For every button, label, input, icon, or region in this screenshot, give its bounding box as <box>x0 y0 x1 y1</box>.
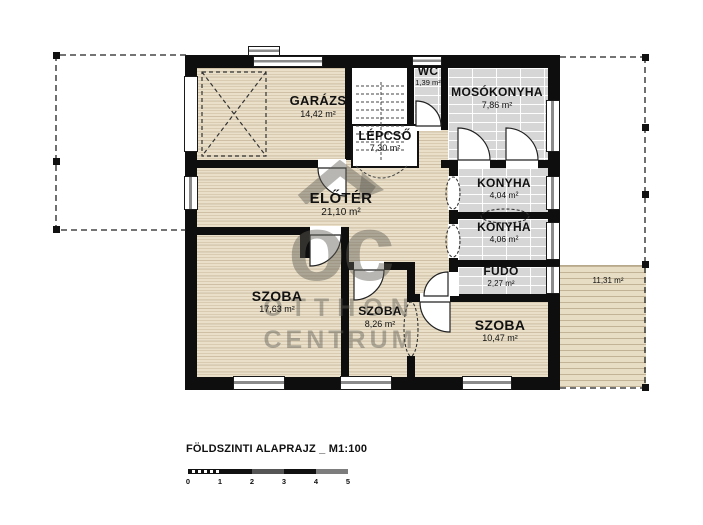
window <box>340 376 392 390</box>
wall-szoba2-top <box>341 262 414 270</box>
wall-wc-mosokonyha <box>441 55 448 124</box>
wall-mosokonyha-bottom <box>441 160 560 168</box>
door-leaf-szoba1 <box>300 249 322 258</box>
floor-mosokonyha <box>448 68 548 160</box>
window <box>248 46 280 56</box>
garage-door-opening <box>184 76 198 152</box>
room-label-szoba-1: SZOBA 17,63 m² <box>252 288 303 314</box>
wall-szoba1-szoba2 <box>341 227 349 377</box>
room-label-szoba-3: SZOBA 10,47 m² <box>475 317 526 343</box>
room-label-eloter: ELŐTÉR 21,10 m² <box>310 190 373 219</box>
window <box>546 100 560 152</box>
scale-tick: 0 <box>183 477 193 486</box>
wall-szoba2-szoba3-stub <box>407 356 415 377</box>
scale-tick: 5 <box>343 477 353 486</box>
scale-tick: 1 <box>215 477 225 486</box>
scale-tick: 3 <box>279 477 289 486</box>
room-label-wc: WC 1,39 m² <box>415 65 440 87</box>
scale-tick: 2 <box>247 477 257 486</box>
room-label-terasz: 11,31 m² <box>593 276 624 285</box>
wall-konyha-divider-1 <box>449 212 560 219</box>
window <box>546 222 560 260</box>
scale-bar-segment <box>284 469 316 474</box>
window <box>546 266 560 294</box>
wall-exterior-top <box>185 55 560 68</box>
scale-bar-segment <box>252 469 284 474</box>
room-label-lepcso: LÉPCSŐ 7,30 m² <box>358 129 411 154</box>
room-label-szoba-2: SZOBA 8,26 m² <box>358 305 402 329</box>
floorplan-canvas: oc OTTHON CENTRUM GARÁZS 14,42 m² WC 1,3… <box>0 0 703 525</box>
room-label-fudo: FÜDŐ 2,27 m² <box>483 265 518 288</box>
room-label-mosokonyha: MOSÓKONYHA 7,86 m² <box>451 86 543 110</box>
scale-bar-segment <box>220 469 252 474</box>
carport-plot <box>53 52 186 233</box>
wall-garage-bottom <box>197 160 318 168</box>
wall-konyha-left <box>449 160 458 302</box>
window <box>184 176 198 210</box>
room-label-konyha-1: KONYHA 4,04 m² <box>477 177 531 201</box>
scale-tick: 4 <box>311 477 321 486</box>
window <box>253 56 323 67</box>
scale-bar <box>188 469 348 474</box>
wall-szoba1-top <box>197 227 310 235</box>
room-label-konyha-2: KONYHA 4,06 m² <box>477 221 531 245</box>
window <box>462 376 512 390</box>
room-label-garazs: GARÁZS 14,42 m² <box>290 94 347 119</box>
window <box>233 376 285 390</box>
scale-bar-segment <box>188 469 220 474</box>
wall-szoba1-door-jog <box>300 227 310 250</box>
window <box>546 176 560 210</box>
plan-title: FÖLDSZINTI ALAPRAJZ _ M1:100 <box>186 443 367 455</box>
wall-szoba3-top <box>414 294 548 302</box>
scale-bar-segment <box>316 469 348 474</box>
